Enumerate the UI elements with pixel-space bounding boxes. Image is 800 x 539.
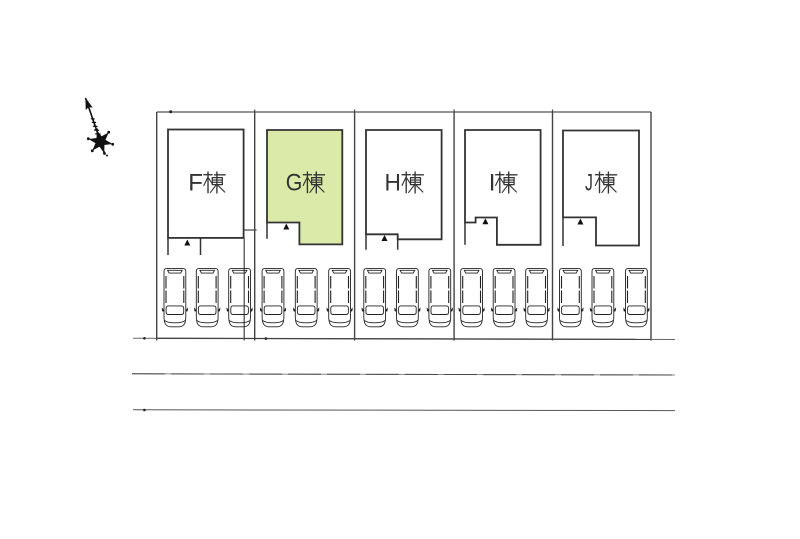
svg-text:F: F [188, 170, 203, 197]
svg-text:J: J [585, 170, 593, 197]
svg-text:H: H [385, 170, 401, 197]
svg-text:I: I [489, 170, 496, 197]
svg-text:G: G [286, 170, 303, 197]
